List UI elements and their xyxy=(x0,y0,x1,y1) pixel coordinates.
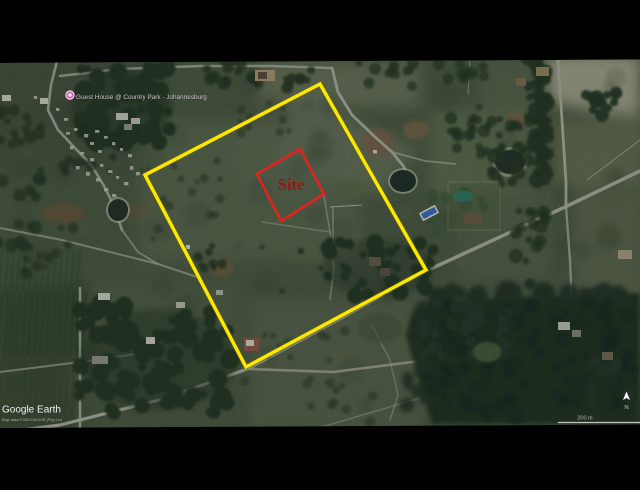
svg-text:Google Earth: Google Earth xyxy=(2,405,61,416)
svg-text:Map data ©2023 AfriGIS (Pty) L: Map data ©2023 AfriGIS (Pty) Ltd xyxy=(2,417,62,422)
svg-text:Guest House @ Country Park - J: Guest House @ Country Park - Johannesbur… xyxy=(76,94,207,101)
svg-text:N: N xyxy=(624,405,628,411)
svg-text:200 m: 200 m xyxy=(577,416,593,422)
svg-text:Site: Site xyxy=(278,175,305,194)
